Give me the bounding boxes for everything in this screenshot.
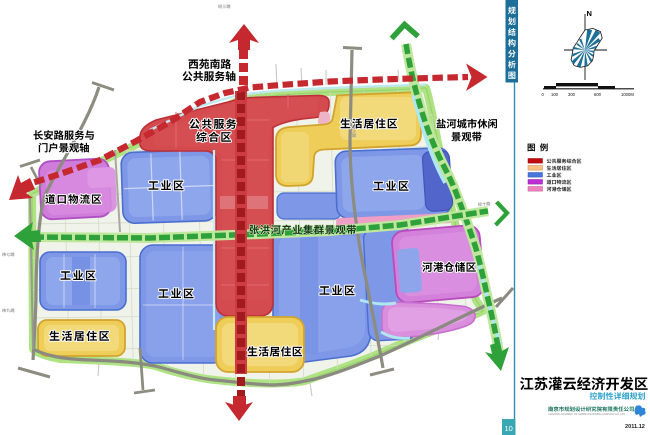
svg-text:10: 10 — [505, 424, 513, 433]
svg-text:600: 600 — [594, 92, 602, 97]
svg-text:2011.12: 2011.12 — [625, 424, 645, 430]
svg-text:N: N — [587, 9, 592, 18]
svg-text:1000M: 1000M — [621, 92, 634, 97]
svg-text:300: 300 — [568, 92, 576, 97]
svg-text:NANJING ACADEMY OF URBAN PLANN: NANJING ACADEMY OF URBAN PLANNING & DESI… — [549, 412, 626, 416]
svg-text:100: 100 — [551, 92, 559, 97]
svg-text:0: 0 — [542, 92, 545, 97]
